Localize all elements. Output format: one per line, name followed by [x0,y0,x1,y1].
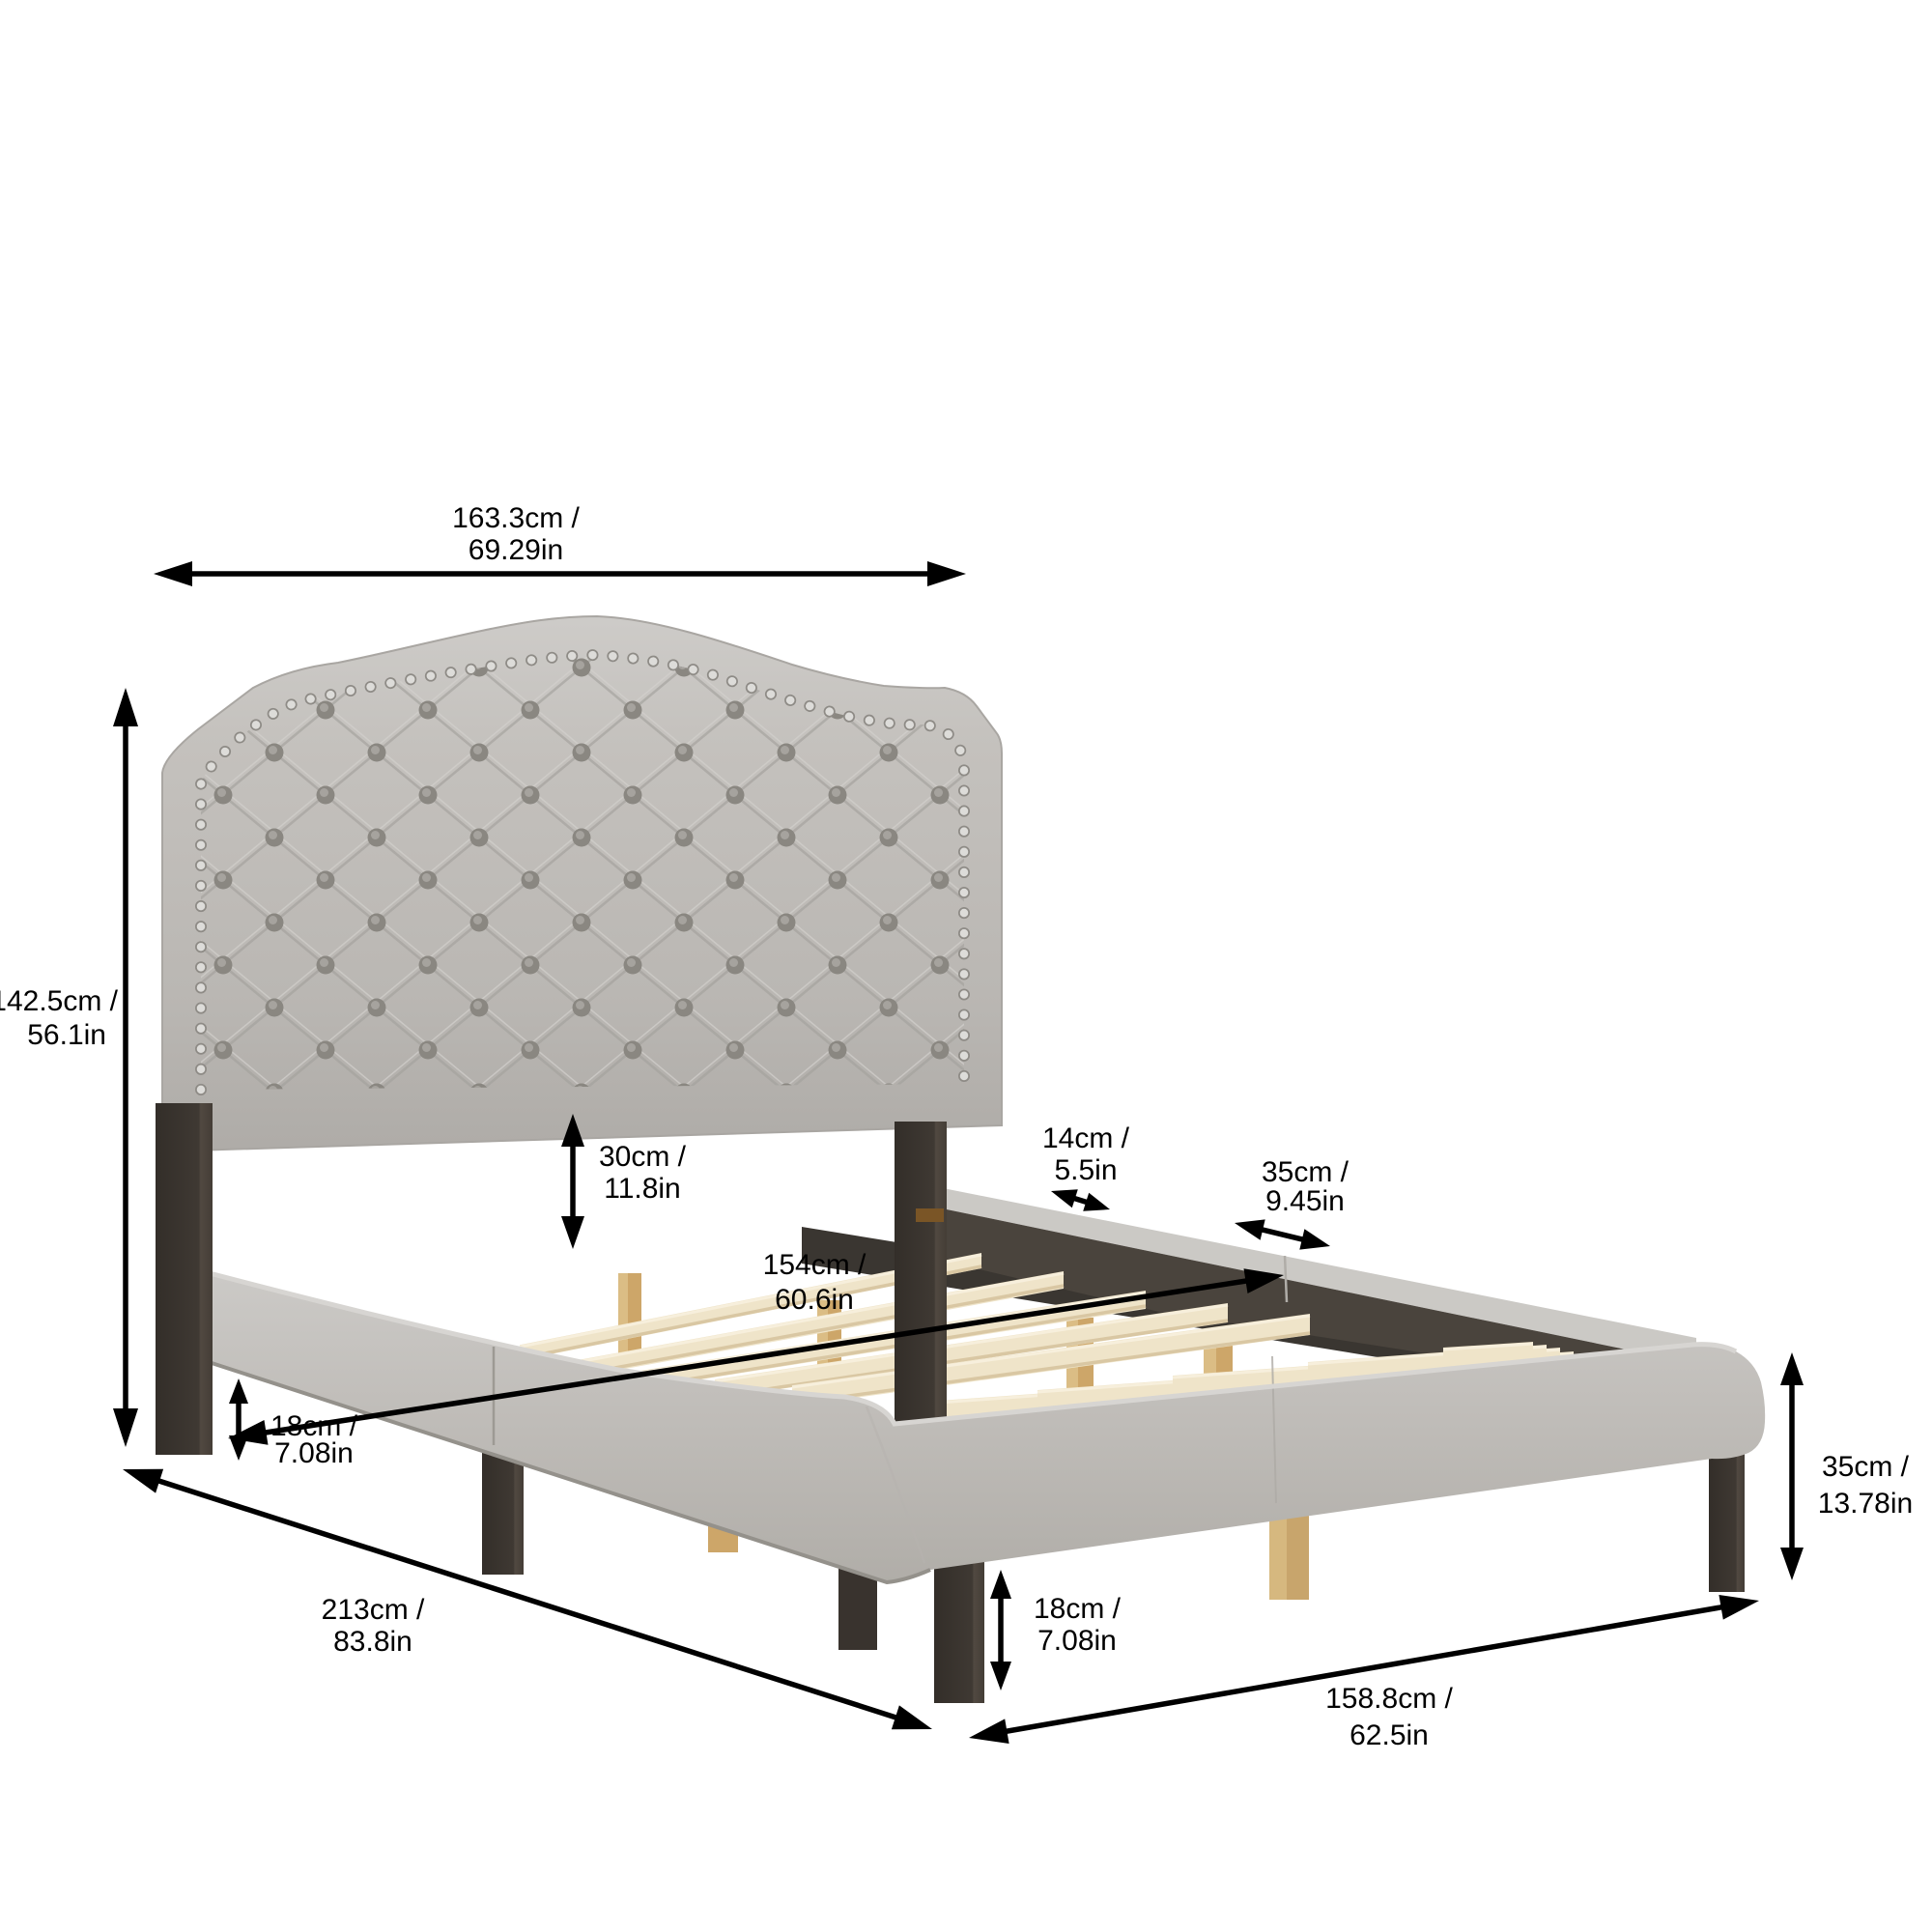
svg-text:154cm /: 154cm / [763,1249,867,1281]
svg-text:60.6in: 60.6in [775,1284,854,1316]
svg-text:62.5in: 62.5in [1350,1719,1429,1751]
svg-text:7.08in: 7.08in [1037,1625,1117,1657]
svg-text:7.08in: 7.08in [274,1437,354,1469]
svg-text:69.29in: 69.29in [469,534,563,566]
svg-text:5.5in: 5.5in [1054,1154,1117,1186]
svg-text:9.45in: 9.45in [1265,1185,1345,1217]
svg-text:83.8in: 83.8in [333,1626,412,1658]
svg-text:35cm /: 35cm / [1262,1156,1350,1188]
svg-text:158.8cm /: 158.8cm / [1325,1683,1453,1715]
svg-text:14cm /: 14cm / [1042,1122,1130,1154]
svg-text:56.1in: 56.1in [27,1019,106,1051]
svg-text:35cm /: 35cm / [1822,1451,1910,1483]
svg-text:163.3cm /: 163.3cm / [452,502,580,534]
svg-text:13.78in: 13.78in [1818,1488,1913,1520]
svg-text:142.5cm /: 142.5cm / [0,985,119,1017]
svg-text:18cm /: 18cm / [1034,1593,1122,1625]
svg-text:11.8in: 11.8in [604,1173,681,1205]
svg-text:30cm /: 30cm / [599,1141,687,1173]
svg-text:213cm /: 213cm / [322,1594,425,1626]
